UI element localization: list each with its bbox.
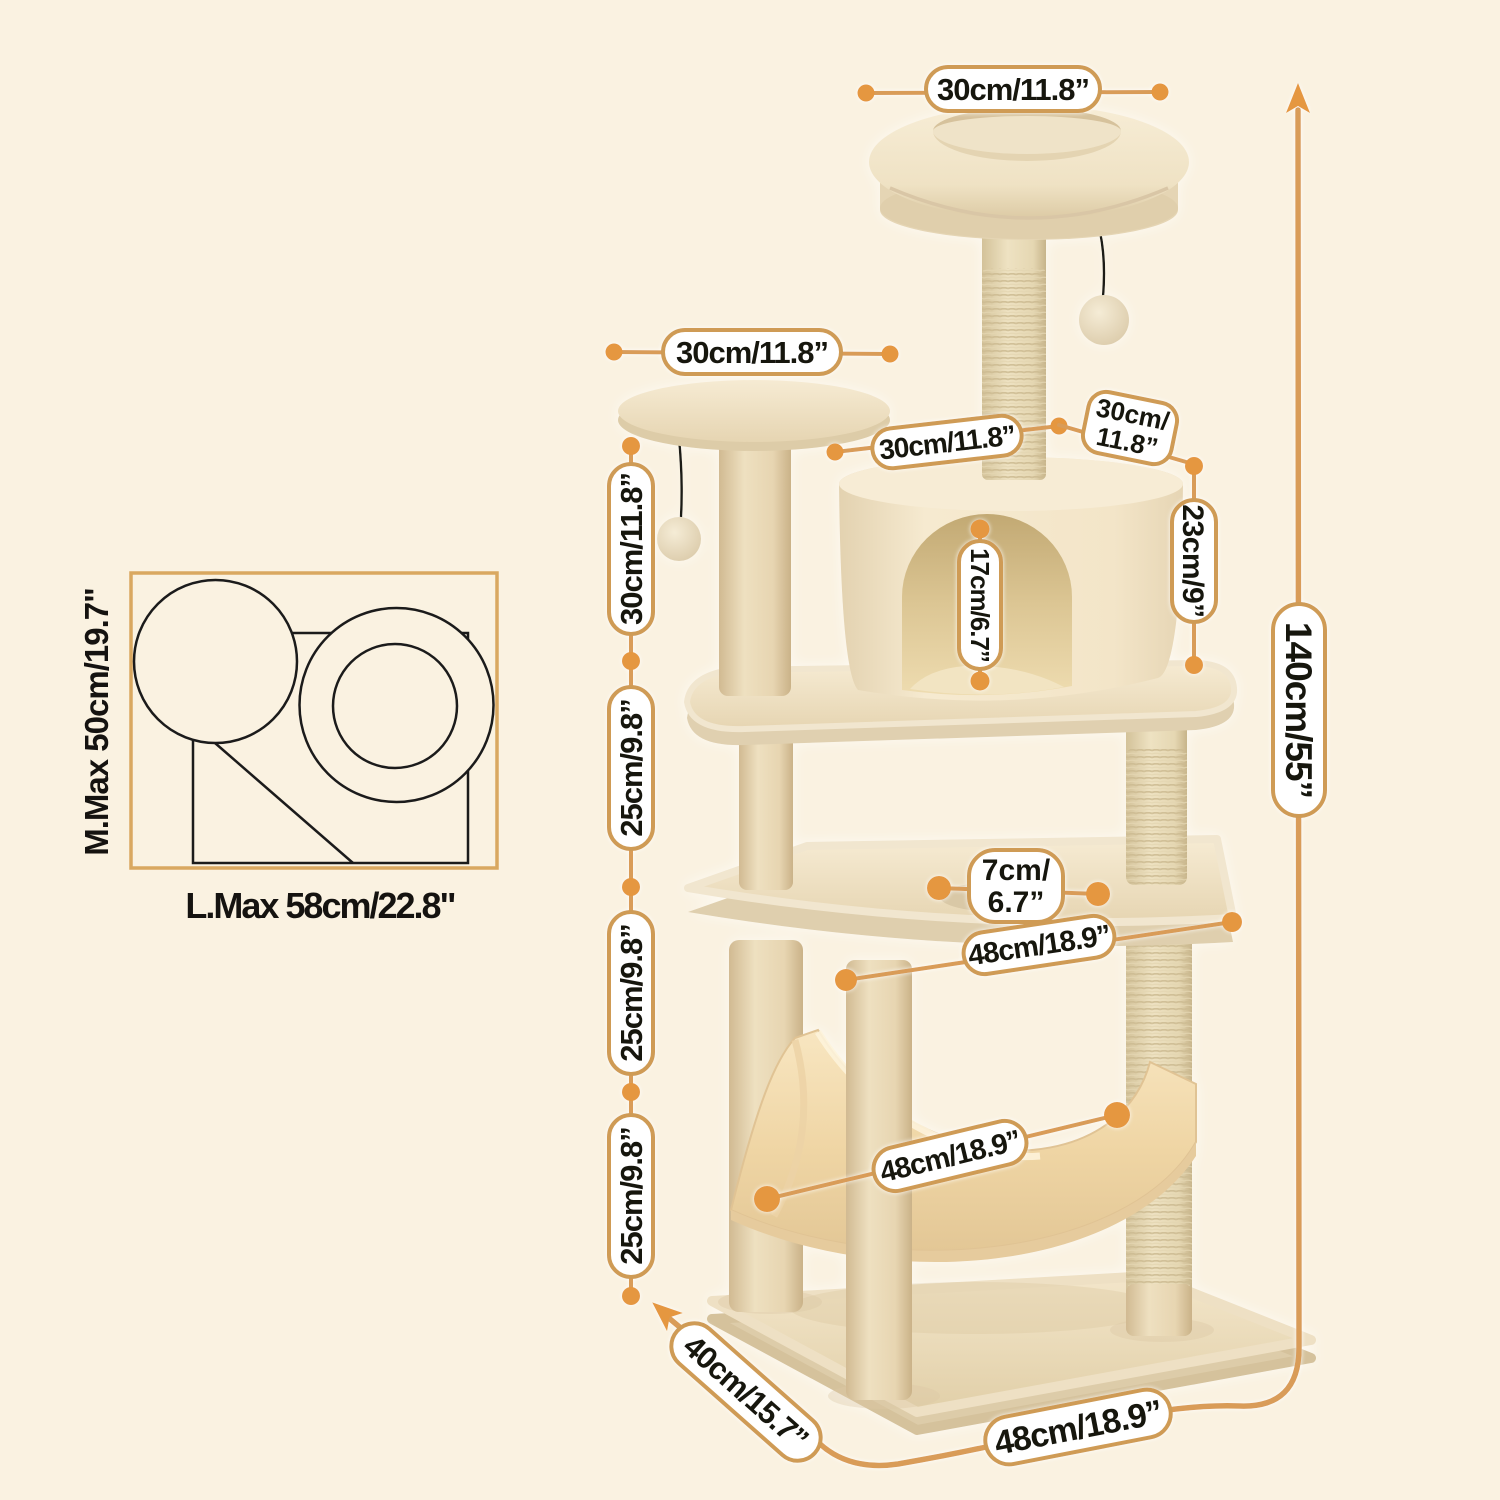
svg-text:6.7”: 6.7”	[988, 886, 1045, 919]
svg-text:30cm/11.8”: 30cm/11.8”	[614, 473, 649, 625]
svg-text:30cm/11.8”: 30cm/11.8”	[937, 72, 1089, 107]
svg-text:23cm/9”: 23cm/9”	[1176, 504, 1209, 617]
svg-text:25cm/9.8”: 25cm/9.8”	[614, 1127, 649, 1265]
svg-text:17cm/6.7”: 17cm/6.7”	[965, 548, 995, 662]
svg-text:7cm/: 7cm/	[982, 854, 1051, 887]
svg-text:25cm/9.8”: 25cm/9.8”	[614, 699, 649, 837]
svg-text:25cm/9.8”: 25cm/9.8”	[614, 924, 649, 1062]
svg-text:140cm/55”: 140cm/55”	[1278, 622, 1319, 798]
svg-text:L.Max 58cm/22.8": L.Max 58cm/22.8"	[185, 885, 454, 926]
svg-text:30cm/11.8”: 30cm/11.8”	[676, 335, 828, 370]
svg-text:M.Max 50cm/19.7": M.Max 50cm/19.7"	[78, 588, 115, 855]
